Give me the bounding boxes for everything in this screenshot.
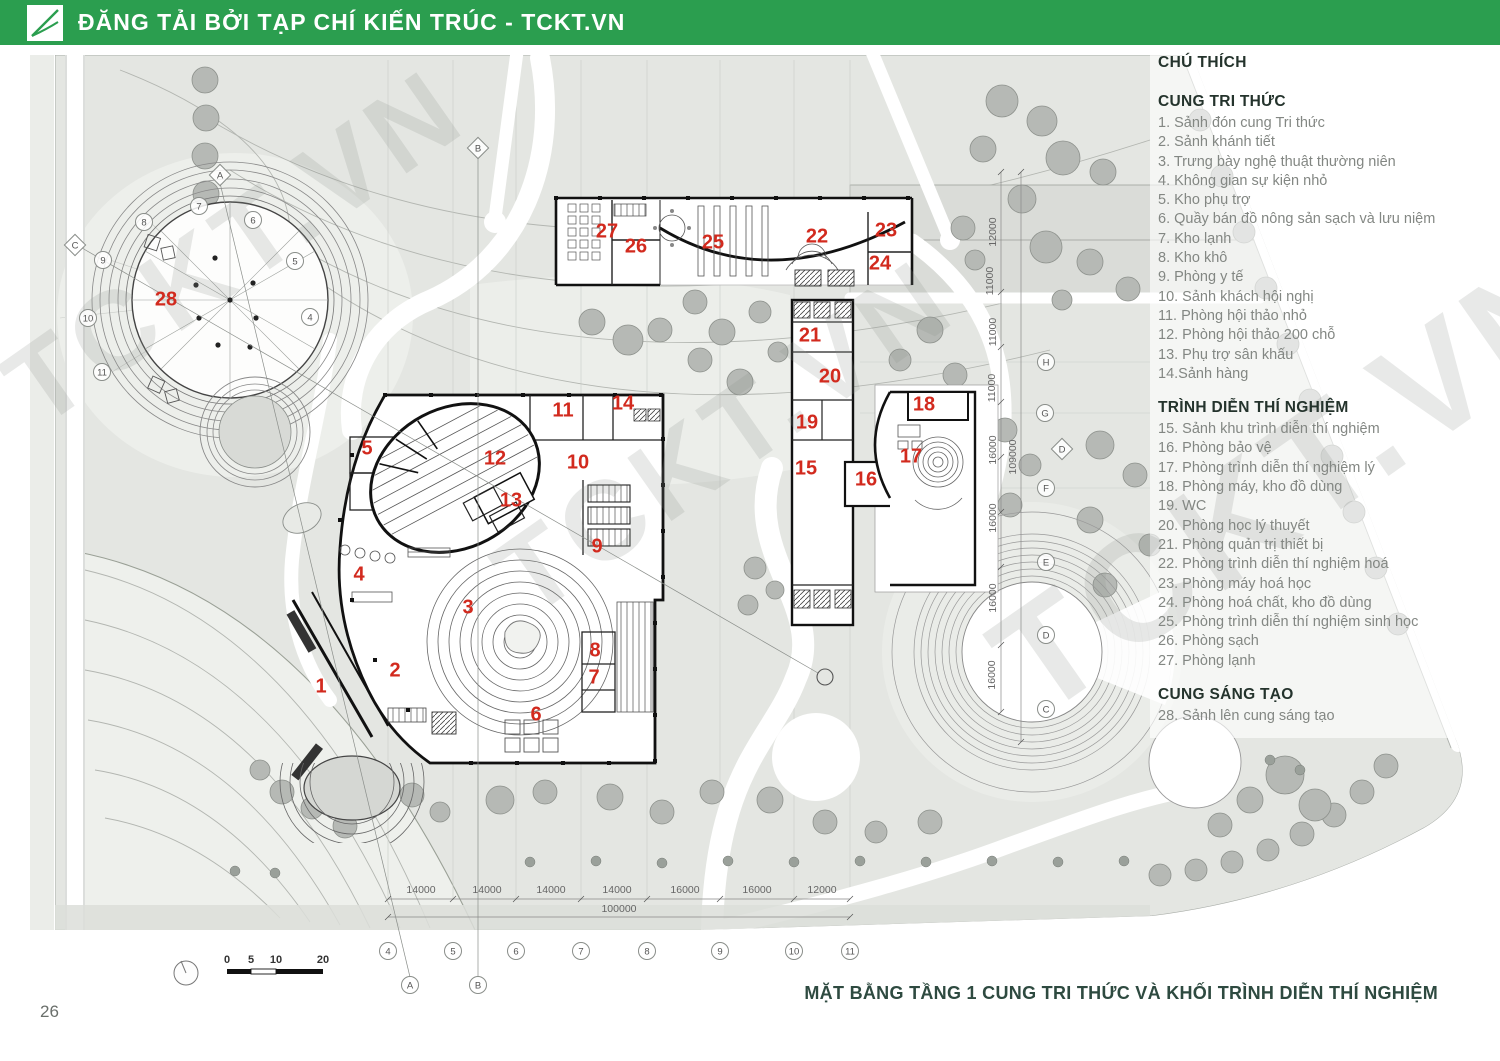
grid-bubble-4: 4 — [380, 943, 397, 960]
legend-item: 3. Trưng bày nghệ thuật thường niên — [1158, 153, 1454, 172]
svg-text:G: G — [1041, 409, 1048, 420]
legend-item: 4. Không gian sự kiện nhỏ — [1158, 172, 1454, 191]
grid-bubble-10: 10 — [80, 310, 97, 327]
grid-bubble-7: 7 — [191, 198, 208, 215]
svg-text:E: E — [1043, 558, 1049, 569]
legend-item: 16. Phòng bảo vệ — [1158, 439, 1454, 458]
grid-bubble-G: G — [1037, 405, 1054, 422]
svg-text:11: 11 — [845, 947, 855, 958]
grid-bubble-B: B — [470, 977, 487, 994]
grid-bubble-E: E — [1038, 554, 1055, 571]
grid-bubble-6: 6 — [508, 943, 525, 960]
legend-item: 23. Phòng máy hoá học — [1158, 575, 1454, 594]
svg-text:H: H — [1043, 358, 1050, 369]
svg-text:14000: 14000 — [472, 884, 501, 896]
scale-bar-labels: 051020 — [224, 954, 329, 966]
svg-text:11000: 11000 — [986, 374, 998, 403]
grid-bubble-8: 8 — [639, 943, 656, 960]
svg-text:6: 6 — [513, 947, 518, 958]
grid-bubble-7: 7 — [573, 943, 590, 960]
svg-text:16000: 16000 — [986, 660, 998, 689]
legend-title: CHÚ THÍCH — [1158, 54, 1454, 72]
legend-item: 25. Phòng trình diễn thí nghiệm sinh học — [1158, 613, 1454, 632]
svg-text:A: A — [217, 171, 224, 182]
svg-text:5: 5 — [248, 954, 254, 966]
svg-text:14000: 14000 — [536, 884, 565, 896]
grid-bubble-9: 9 — [95, 252, 112, 269]
svg-text:7: 7 — [196, 202, 201, 213]
legend-item: 26. Phòng sạch — [1158, 632, 1454, 651]
svg-text:0: 0 — [224, 954, 230, 966]
svg-text:14000: 14000 — [406, 884, 435, 896]
legend-item: 6. Quầy bán đồ nông sản sạch và lưu niệm — [1158, 210, 1454, 229]
page-number: 26 — [40, 1002, 59, 1022]
legend-item: 14.Sảnh hàng — [1158, 365, 1454, 384]
svg-text:11: 11 — [97, 368, 107, 379]
legend-item: 2. Sảnh khánh tiết — [1158, 133, 1454, 152]
svg-text:10: 10 — [789, 947, 800, 958]
svg-text:9: 9 — [717, 947, 722, 958]
legend-section-heading: CUNG SÁNG TẠO — [1158, 686, 1454, 704]
legend-section-heading: TRÌNH DIỄN THÍ NGHIỆM — [1158, 399, 1454, 417]
svg-text:8: 8 — [141, 218, 146, 229]
svg-text:5: 5 — [292, 257, 297, 268]
legend-item: 1. Sảnh đón cung Tri thức — [1158, 114, 1454, 133]
svg-text:5: 5 — [450, 947, 455, 958]
legend-item: 18. Phòng máy, kho đồ dùng — [1158, 478, 1454, 497]
legend-item: 5. Kho phụ trợ — [1158, 191, 1454, 210]
publisher-header: ĐĂNG TẢI BỞI TẠP CHÍ KIẾN TRÚC - TCKT.VN — [0, 0, 1500, 45]
grid-bubble-D: D — [1038, 627, 1055, 644]
legend-item: 19. WC — [1158, 497, 1454, 516]
grid-bubble-8: 8 — [136, 214, 153, 231]
svg-text:D: D — [1059, 445, 1066, 456]
legend-sections: CUNG TRI THỨC1. Sảnh đón cung Tri thức2.… — [1158, 93, 1454, 726]
magazine-page: TCKT.VNTCKT.VNTCKT.VN 140001400014000140… — [0, 0, 1500, 1061]
left-road-band — [30, 55, 54, 930]
svg-text:12000: 12000 — [987, 217, 999, 246]
legend-section-heading: CUNG TRI THỨC — [1158, 93, 1454, 111]
svg-text:9: 9 — [100, 256, 105, 267]
legend: CHÚ THÍCH CUNG TRI THỨC1. Sảnh đón cung … — [1158, 54, 1454, 726]
legend-item: 24. Phòng hoá chất, kho đồ dùng — [1158, 594, 1454, 613]
legend-item: 7. Kho lạnh — [1158, 230, 1454, 249]
svg-text:10: 10 — [83, 314, 94, 325]
svg-text:109000: 109000 — [1007, 439, 1019, 474]
grid-bubble-C: C — [1038, 701, 1055, 718]
legend-item: 8. Kho khô — [1158, 249, 1454, 268]
grid-bubble-H: H — [1038, 354, 1055, 371]
legend-item: 15. Sảnh khu trình diễn thí nghiệm — [1158, 420, 1454, 439]
grid-bubble-F: F — [1038, 480, 1055, 497]
svg-text:16000: 16000 — [987, 503, 999, 532]
legend-item: 21. Phòng quản trị thiết bị — [1158, 536, 1454, 555]
legend-item: 17. Phòng trình diễn thí nghiệm lý — [1158, 459, 1454, 478]
drawing-caption: MẶT BẰNG TẦNG 1 CUNG TRI THỨC VÀ KHỐI TR… — [804, 983, 1438, 1004]
legend-item: 22. Phòng trình diễn thí nghiệm hoá — [1158, 555, 1454, 574]
svg-text:4: 4 — [307, 313, 312, 324]
legend-item: 9. Phòng y tế — [1158, 268, 1454, 287]
svg-text:8: 8 — [644, 947, 649, 958]
legend-item: 11. Phòng hội thảo nhỏ — [1158, 307, 1454, 326]
svg-text:B: B — [475, 144, 481, 155]
grid-bubble-6: 6 — [245, 212, 262, 229]
publisher-title: ĐĂNG TẢI BỞI TẠP CHÍ KIẾN TRÚC - TCKT.VN — [78, 9, 625, 36]
svg-text:10: 10 — [270, 954, 282, 966]
svg-text:C: C — [72, 241, 79, 252]
svg-text:16000: 16000 — [670, 884, 699, 896]
svg-text:16000: 16000 — [987, 583, 999, 612]
legend-item: 27. Phòng lạnh — [1158, 652, 1454, 671]
svg-text:4: 4 — [385, 947, 390, 958]
legend-item: 10. Sảnh khách hội nghị — [1158, 288, 1454, 307]
grid-bubble-10: 10 — [786, 943, 803, 960]
legend-item: 28. Sảnh lên cung sáng tạo — [1158, 707, 1454, 726]
svg-text:16000: 16000 — [987, 435, 999, 464]
grid-bubble-9: 9 — [712, 943, 729, 960]
grid-bubble-5: 5 — [445, 943, 462, 960]
svg-text:11000: 11000 — [984, 267, 996, 296]
legend-item: 20. Phòng học lý thuyết — [1158, 517, 1454, 536]
svg-text:A: A — [407, 981, 414, 992]
svg-text:14000: 14000 — [602, 884, 631, 896]
svg-text:C: C — [1043, 705, 1050, 716]
grid-bubble-11: 11 — [94, 364, 111, 381]
svg-text:D: D — [1043, 631, 1050, 642]
grid-bubble-5: 5 — [287, 253, 304, 270]
svg-text:12000: 12000 — [807, 884, 836, 896]
svg-text:F: F — [1043, 484, 1049, 495]
svg-text:11000: 11000 — [987, 318, 999, 347]
svg-text:20: 20 — [317, 954, 329, 966]
svg-text:16000: 16000 — [742, 884, 771, 896]
svg-text:100000: 100000 — [601, 903, 636, 915]
svg-text:7: 7 — [578, 947, 583, 958]
grid-bubble-11: 11 — [842, 943, 859, 960]
tckt-logo-icon — [27, 5, 63, 41]
legend-item: 12. Phòng hội thảo 200 chỗ — [1158, 326, 1454, 345]
svg-text:6: 6 — [250, 216, 255, 227]
grid-bubble-4: 4 — [302, 309, 319, 326]
legend-item: 13. Phụ trợ sân khấu — [1158, 346, 1454, 365]
grid-bubble-A: A — [402, 977, 419, 994]
svg-text:B: B — [475, 981, 481, 992]
